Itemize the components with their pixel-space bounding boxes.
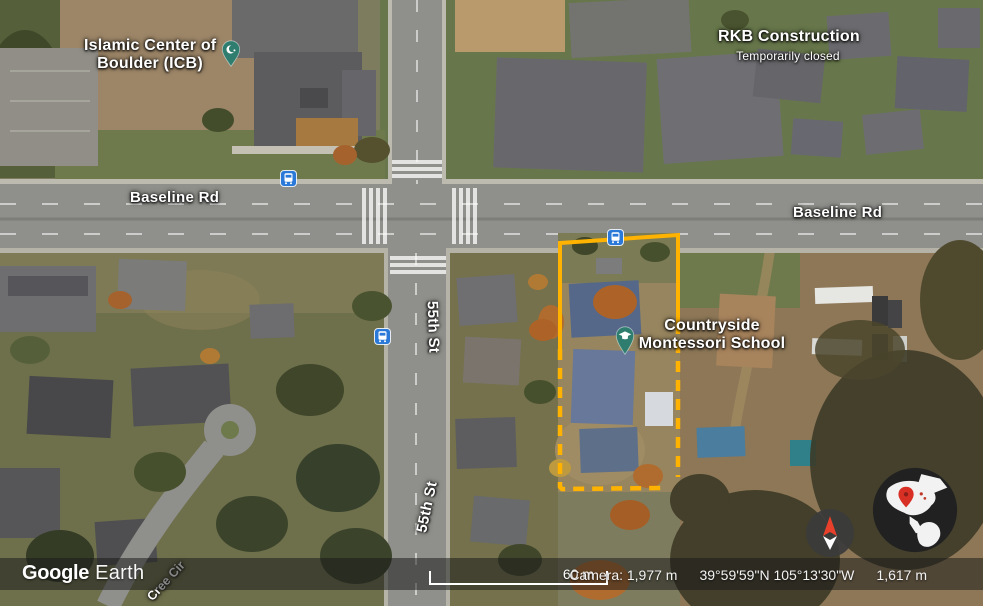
label-school-line1: Countryside — [637, 317, 787, 335]
label-school-line2: Montessori School — [637, 335, 787, 353]
google-earth-logo: GoogleEarth — [22, 562, 144, 585]
label-baseline-rd-west: Baseline Rd — [130, 189, 219, 206]
camera-info: Camera: 1,977 m 39°59'59"N 105°13'30"W 1… — [569, 567, 927, 583]
label-rkb-name: RKB Construction — [718, 28, 858, 46]
label-rkb-status: Temporarily closed — [718, 47, 858, 65]
elevation: 1,617 m — [876, 567, 927, 583]
school-property — [555, 233, 680, 492]
islamic-center-pin[interactable] — [221, 40, 241, 68]
label-islamic-center-line1: Islamic Center of — [84, 37, 216, 55]
montessori-school-pin[interactable] — [615, 326, 635, 356]
google-earth-viewport[interactable]: Islamic Center of Boulder (ICB) RKB Cons… — [0, 0, 983, 606]
globe-overview-control[interactable] — [872, 467, 958, 553]
bus-stop-icon[interactable] — [607, 229, 624, 246]
label-baseline-rd-east: Baseline Rd — [793, 204, 882, 221]
bus-stop-icon[interactable] — [374, 328, 391, 345]
label-islamic-center-line2: Boulder (ICB) — [84, 55, 216, 73]
label-islamic-center[interactable]: Islamic Center of Boulder (ICB) — [84, 37, 216, 73]
coordinates: 39°59'59"N 105°13'30"W — [699, 567, 854, 583]
label-montessori-school[interactable]: Countryside Montessori School — [637, 317, 787, 353]
camera-altitude: Camera: 1,977 m — [569, 567, 677, 583]
compass-control[interactable] — [806, 509, 854, 557]
bus-stop-icon[interactable] — [280, 170, 297, 187]
logo-google-text: Google — [22, 562, 89, 584]
label-55th-st-north: 55th St — [424, 301, 443, 354]
logo-earth-text: Earth — [95, 562, 144, 584]
label-rkb-construction[interactable]: RKB Construction Temporarily closed — [718, 28, 858, 65]
